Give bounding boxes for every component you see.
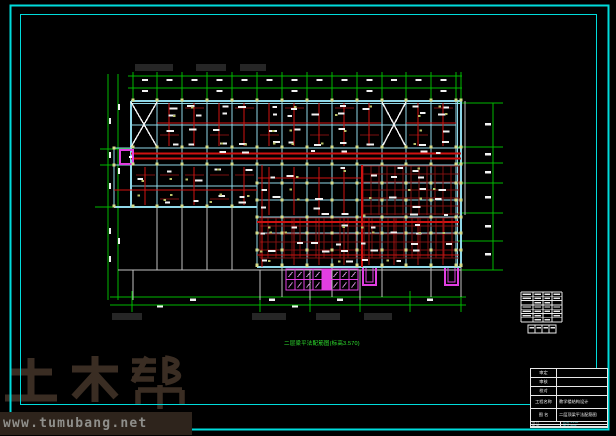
title-block-label: 审核	[531, 378, 557, 386]
title-block-value	[557, 387, 607, 395]
title-block-label: 工程名称	[531, 396, 557, 408]
title-block-value: 二层顶梁平法配筋图	[557, 409, 607, 421]
cad-screenshot-stage: www.tumubang.net 二层梁平法配筋图(标高3.570) 审定审核校…	[0, 0, 616, 436]
plan-title-label: 二层梁平法配筋图(标高3.570)	[284, 339, 360, 347]
title-block-footer-row: 制 图图号 结施	[531, 425, 607, 428]
title-block-footer-cell: 制 图	[531, 425, 561, 427]
watermark-url-text: www.tumubang.net	[0, 416, 147, 431]
title-block: 审定审核校对工程名称教学楼结构设计图 名二层顶梁平法配筋图设 计比例 1:100…	[530, 368, 608, 428]
title-block-footer-cell: 图号 结施	[561, 425, 607, 427]
title-block-value: 教学楼结构设计	[557, 396, 607, 408]
title-block-row: 图 名二层顶梁平法配筋图	[531, 409, 607, 422]
title-block-value	[557, 378, 607, 386]
watermark-url-bar: www.tumubang.net	[0, 412, 192, 435]
title-block-row: 工程名称教学楼结构设计	[531, 396, 607, 409]
title-block-label: 图 名	[531, 409, 557, 421]
title-block-footer-cell: 设 计	[531, 422, 561, 424]
title-block-row: 审定	[531, 369, 607, 378]
title-block-footer-cell: 比例 1:100	[561, 422, 607, 424]
cad-plan-drawing	[0, 0, 616, 436]
title-block-label: 校对	[531, 387, 557, 395]
title-block-label: 审定	[531, 369, 557, 377]
title-block-value	[557, 369, 607, 377]
title-block-row: 审核	[531, 378, 607, 387]
title-block-row: 校对	[531, 387, 607, 396]
